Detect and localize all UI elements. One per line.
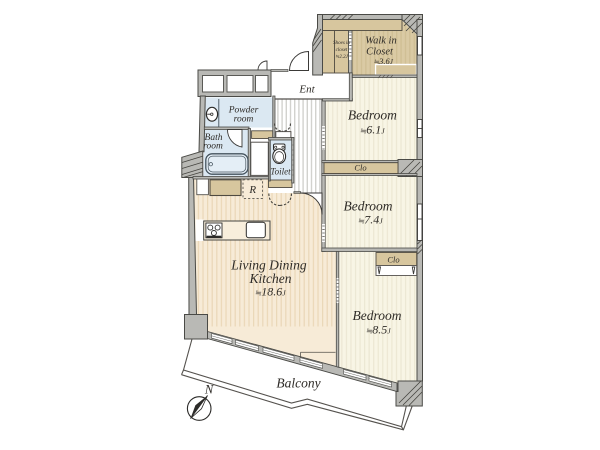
- svg-text:Toilet: Toilet: [270, 167, 291, 177]
- svg-text:≒3.6J: ≒3.6J: [373, 56, 394, 66]
- svg-text:Bedroom: Bedroom: [348, 108, 397, 123]
- svg-text:Ent: Ent: [298, 84, 315, 96]
- svg-text:Shoes in: Shoes in: [333, 41, 350, 46]
- svg-text:Clo: Clo: [354, 163, 366, 173]
- svg-text:Balcony: Balcony: [276, 376, 320, 391]
- svg-text:room: room: [203, 142, 223, 152]
- svg-text:N: N: [204, 383, 214, 397]
- svg-text:Bedroom: Bedroom: [344, 199, 393, 214]
- svg-text:Bedroom: Bedroom: [353, 308, 402, 323]
- svg-text:Walk in: Walk in: [365, 36, 396, 47]
- svg-text:closet: closet: [336, 48, 348, 53]
- svg-text:≒2.2J: ≒2.2J: [335, 54, 348, 60]
- svg-text:R: R: [248, 184, 256, 196]
- svg-text:room: room: [234, 115, 254, 125]
- svg-text:Clo: Clo: [387, 255, 399, 265]
